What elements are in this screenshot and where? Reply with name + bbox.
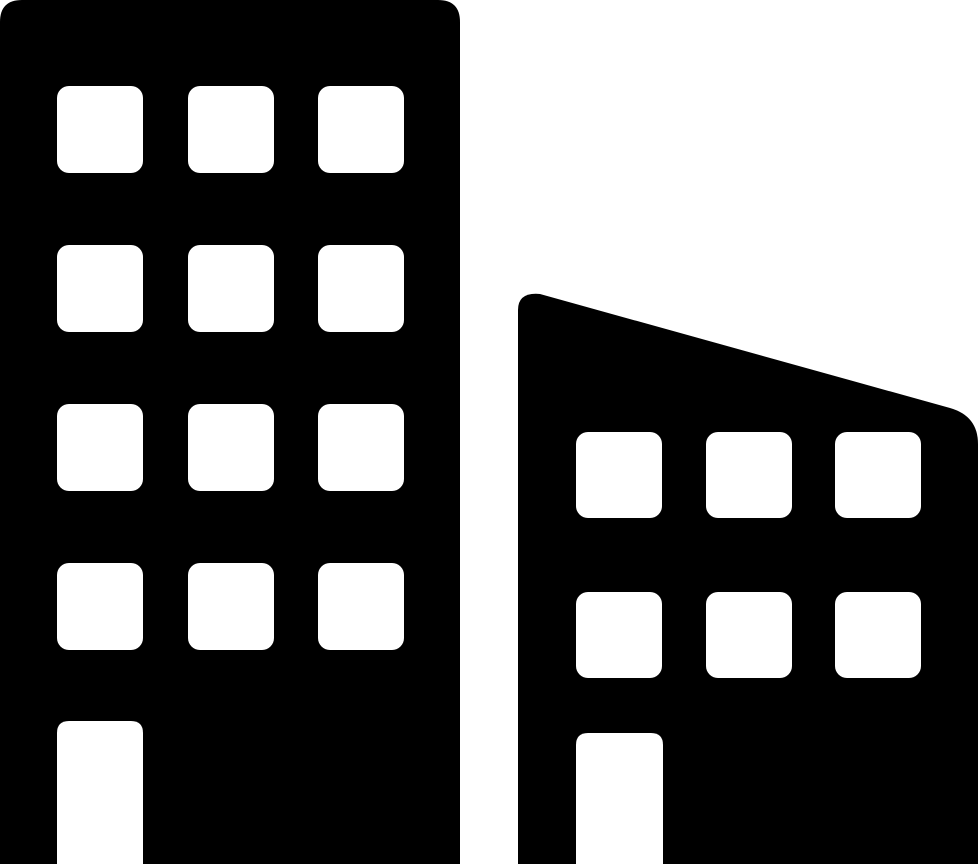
city-buildings-icon xyxy=(0,0,980,866)
left-building-window xyxy=(318,245,404,332)
left-building-window xyxy=(57,86,143,173)
left-building-window xyxy=(318,86,404,173)
left-building-window xyxy=(188,86,274,173)
left-building-window xyxy=(188,245,274,332)
right-building-window xyxy=(835,432,921,518)
left-building-window xyxy=(57,404,143,491)
right-building-window xyxy=(706,432,792,518)
left-building-window xyxy=(318,563,404,650)
right-building-window xyxy=(706,592,792,678)
right-building-window xyxy=(835,592,921,678)
left-building-window xyxy=(318,404,404,491)
left-building-window xyxy=(188,563,274,650)
left-building-window xyxy=(57,245,143,332)
right-building-window xyxy=(576,592,662,678)
left-building-door xyxy=(57,721,143,864)
city-buildings-svg xyxy=(0,0,980,866)
left-building-window xyxy=(57,563,143,650)
right-building-window xyxy=(576,432,662,518)
left-building-window xyxy=(188,404,274,491)
right-building-door xyxy=(576,733,663,864)
